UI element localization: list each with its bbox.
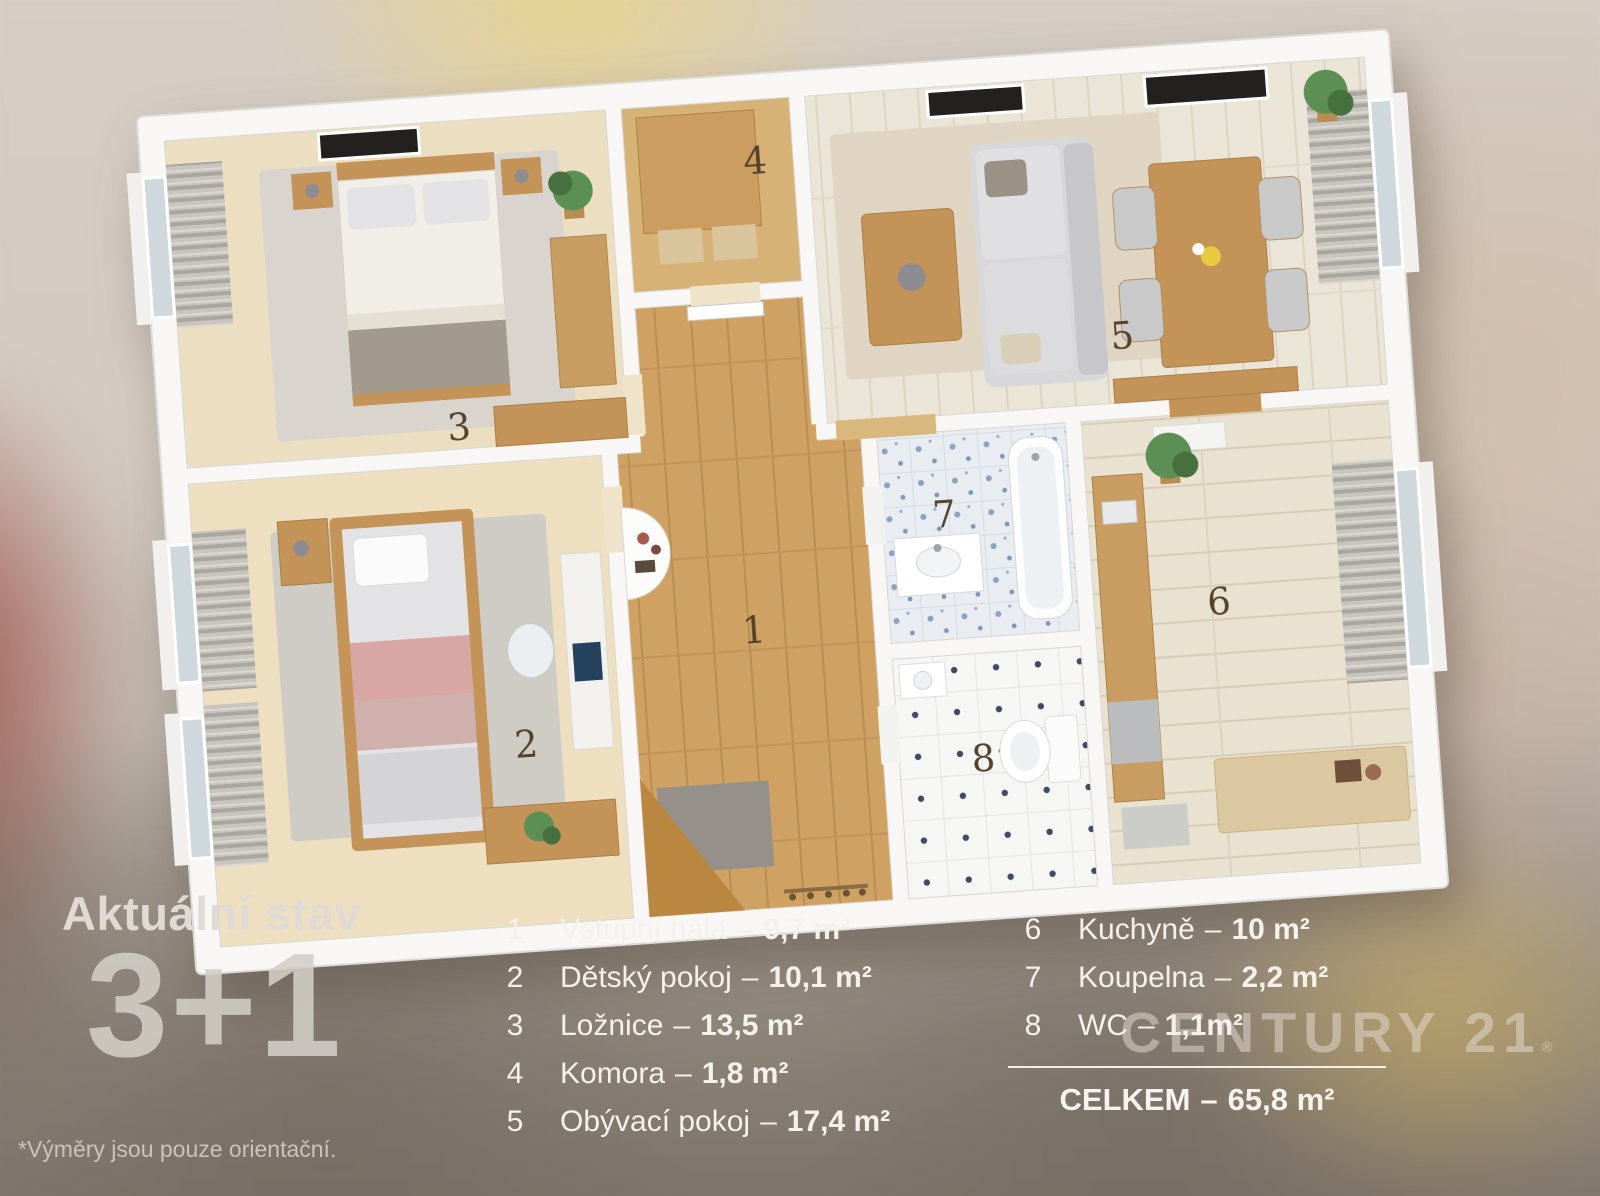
double-bed <box>336 152 511 406</box>
floor-plan-svg: 1 2 3 4 5 6 7 8 <box>137 29 1449 974</box>
legend-column-right: 6 Kuchyně – 10 m² 7 Koupelna – 2,2 m² 8 … <box>1016 906 1328 1050</box>
room-number-4: 4 <box>742 139 768 184</box>
legend-room-number: 2 <box>498 961 532 995</box>
room-number-6: 6 <box>1206 580 1232 625</box>
legend-room-label: WC <box>1078 1009 1128 1043</box>
room-number-2: 2 <box>513 722 539 767</box>
legend-dash: – <box>760 1105 777 1139</box>
legend-dash: – <box>673 1009 690 1043</box>
layout-label: 3+1 <box>86 928 343 1083</box>
legend-room-number: 1 <box>498 913 532 947</box>
sofa <box>969 136 1110 388</box>
registered-mark: ® <box>1542 1039 1553 1056</box>
legend-dash: – <box>1215 961 1232 995</box>
legend-room-value: 10 m² <box>1231 913 1309 947</box>
total-value: 65,8 m² <box>1228 1082 1335 1118</box>
kitchen-island <box>1214 746 1411 833</box>
legend-dash: – <box>1205 913 1222 947</box>
legend-room-value: 2,2 m² <box>1241 961 1328 995</box>
room-number-8: 8 <box>970 737 996 782</box>
legend-room-number: 3 <box>498 1009 532 1043</box>
total-divider-line <box>1008 1066 1386 1068</box>
legend-room-number: 8 <box>1016 1009 1050 1043</box>
legend-room-label: Ložnice <box>560 1009 663 1043</box>
legend-room-number: 6 <box>1016 913 1050 947</box>
coffee-table <box>861 208 962 346</box>
total-label: CELKEM <box>1060 1082 1191 1118</box>
room-number-1: 1 <box>741 608 767 653</box>
legend-item: 7 Koupelna – 2,2 m² <box>1016 954 1328 1002</box>
legend-item: 6 Kuchyně – 10 m² <box>1016 906 1328 954</box>
legend-item: 3 Ložnice – 13,5 m² <box>498 1002 890 1050</box>
room-number-3: 3 <box>446 405 472 450</box>
bathroom-sink <box>894 533 984 597</box>
legend-room-value: 9,7 m² <box>763 913 850 947</box>
kids-dresser <box>484 799 620 864</box>
legend-room-label: Kuchyně <box>1078 913 1195 947</box>
footnote: *Výměry jsou pouze orientační. <box>18 1136 336 1163</box>
legend-room-value: 1,1m² <box>1165 1009 1243 1043</box>
legend-item: 8 WC – 1,1m² <box>1016 1002 1328 1050</box>
legend-dash: – <box>737 913 754 947</box>
legend-room-label: Koupelna <box>1078 961 1205 995</box>
legend-room-number: 7 <box>1016 961 1050 995</box>
legend-room-number: 4 <box>498 1057 532 1091</box>
dining-table <box>1148 157 1274 368</box>
legend-room-value: 17,4 m² <box>787 1105 890 1139</box>
total-area: CELKEM – 65,8 m² <box>1000 1082 1394 1118</box>
legend-dash: – <box>675 1057 692 1091</box>
wc-corner-sink <box>899 662 947 699</box>
legend-room-label: Dětský pokoj <box>560 961 732 995</box>
kids-headboard-cabinet <box>277 519 331 586</box>
legend-item: 1 Vstupní hala – 9,7 m² <box>498 906 890 954</box>
legend-room-value: 1,8 m² <box>702 1057 789 1091</box>
floor-plan: 1 2 3 4 5 6 7 8 <box>137 29 1449 974</box>
room-number-7: 7 <box>931 493 957 538</box>
page: 1 2 3 4 5 6 7 8 Aktuální stav 3+1 *Výměr… <box>0 0 1600 1196</box>
legend-column-left: 1 Vstupní hala – 9,7 m² 2 Dětský pokoj –… <box>498 906 890 1146</box>
legend-room-label: Komora <box>560 1057 665 1091</box>
room-number-5: 5 <box>1109 314 1135 359</box>
legend-room-number: 5 <box>498 1105 532 1139</box>
legend-room-label: Obývací pokoj <box>560 1105 750 1139</box>
legend-dash: – <box>1138 1009 1155 1043</box>
legend-item: 5 Obývací pokoj – 17,4 m² <box>498 1098 890 1146</box>
picture-frame <box>318 127 420 160</box>
legend-item: 2 Dětský pokoj – 10,1 m² <box>498 954 890 1002</box>
total-dash: – <box>1200 1082 1217 1118</box>
single-bed <box>329 508 496 851</box>
legend-dash: – <box>742 961 759 995</box>
kitchen-mat <box>1121 803 1190 850</box>
legend-room-label: Vstupní hala <box>560 913 727 947</box>
legend-item: 4 Komora – 1,8 m² <box>498 1050 890 1098</box>
legend-room-value: 10,1 m² <box>768 961 871 995</box>
legend-room-value: 13,5 m² <box>700 1009 803 1043</box>
